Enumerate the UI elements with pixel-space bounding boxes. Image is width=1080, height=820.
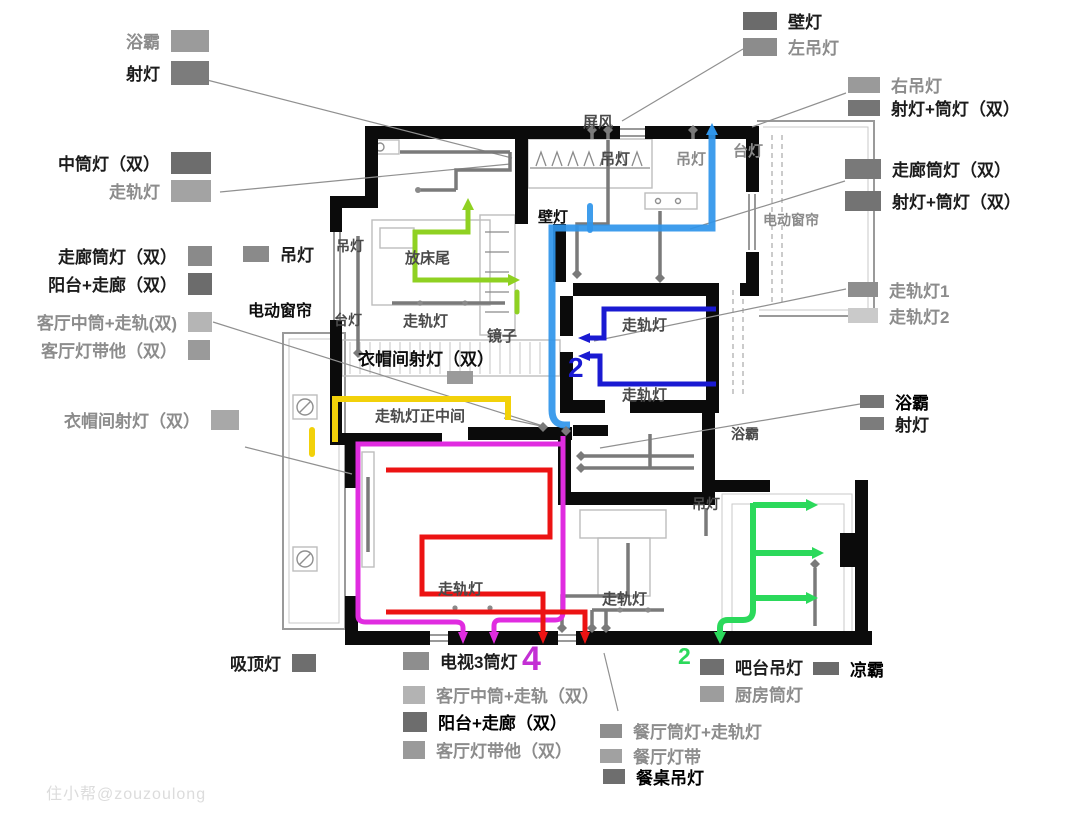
plan-label-wall-lamp: 壁灯 [538, 206, 568, 227]
legend-label: 壁灯 [788, 8, 822, 33]
watermark: 住小帮@zouzoulong [46, 780, 206, 804]
legend-swatch [171, 180, 211, 202]
plan-label-track-bed2: 走轨灯 [403, 310, 448, 331]
legend-swatch [403, 712, 427, 732]
legend-row-right-pendant: 右吊灯 [848, 72, 942, 97]
circuit-number-study: 2 [568, 352, 584, 384]
green-arrow-1 [806, 499, 818, 511]
legend-swatch [848, 77, 880, 93]
legend-label: 衣帽间射灯（双） [52, 407, 200, 432]
legend-swatch [700, 686, 724, 702]
legend-row-track-left: 走轨灯 [40, 178, 211, 203]
legend-swatch [171, 61, 209, 85]
legend-swatch [403, 741, 425, 759]
plan-label-closet-spot: 衣帽间射灯（双） [358, 345, 494, 370]
legend-row-corridor-down-right: 走廊筒灯（双） [845, 156, 1011, 181]
plan-label-pendant-bed2: 吊灯 [336, 236, 364, 256]
legend-swatch [860, 395, 884, 408]
legend-swatch [743, 12, 777, 30]
plan-label-track-study2: 走轨灯 [622, 384, 667, 405]
legend-row-pendant-left: 吊灯 [243, 241, 314, 266]
plan-label-mirror: 镜子 [487, 325, 517, 346]
legend-label: 射灯 [895, 411, 929, 436]
legend-label: 右吊灯 [891, 72, 942, 97]
yellow-green-arrow-up [462, 198, 474, 210]
legend-row-mid-downlight: 中筒灯（双） [40, 150, 211, 175]
legend-label: 吊灯 [280, 241, 314, 266]
legend-label: 厨房筒灯 [735, 681, 803, 706]
legend-row-spot-top-left: 射灯 [60, 60, 209, 85]
legend-label: 射灯+筒灯（双） [892, 188, 1021, 213]
legend-swatch [292, 654, 316, 672]
legend-row-tv3: 电视3筒灯 [403, 648, 517, 673]
legend-row-living-mid-track-bottom: 客厅中筒+走轨（双） [403, 682, 599, 707]
plan-label-track-dining: 走轨灯 [602, 588, 647, 609]
legend-swatch [860, 417, 884, 430]
legend-row-ceiling-lamp: 吸顶灯 [230, 650, 316, 675]
legend-label: 走轨灯1 [889, 277, 949, 302]
legend-label: 客厅灯带他（双） [15, 337, 177, 362]
legend-swatch [188, 273, 212, 295]
plan-label-screen: 屏风 [583, 111, 613, 132]
legend-swatch [600, 749, 622, 763]
legend-label: 射灯 [60, 60, 160, 85]
plan-label-track-living: 走轨灯 [438, 578, 483, 599]
lighting-wiring-floorplan: 浴霸 射灯 中筒灯（双） 走轨灯 走廊筒灯（双） 阳台+走廊（双） 客厅中筒+走… [0, 0, 1080, 820]
legend-row-track2: 走轨灯2 [848, 303, 949, 328]
legend-swatch [211, 410, 239, 430]
legend-swatch [243, 246, 269, 262]
legend-label: 吧台吊灯 [735, 654, 803, 679]
legend-label: 餐厅筒灯+走轨灯 [633, 718, 762, 743]
legend-row-track1: 走轨灯1 [848, 277, 949, 302]
circuit-number-kitchen: 2 [678, 643, 691, 670]
plan-label-lamp-top-right: 台灯 [733, 140, 763, 161]
circuit-red [386, 470, 585, 634]
legend-row-living-mid-track-left: 客厅中筒+走轨(双) [15, 309, 212, 334]
legend-label: 走轨灯2 [889, 303, 949, 328]
legend-row-spot-right: 射灯 [860, 411, 929, 436]
legend-row-spot-down-right: 射灯+筒灯（双） [845, 188, 1021, 213]
legend-row-wall-lamp: 壁灯 [743, 8, 822, 33]
legend-label: 浴霸 [60, 28, 160, 53]
legend-label: 左吊灯 [788, 34, 839, 59]
legend-row-living-strip-left: 客厅灯带他（双） [15, 337, 210, 362]
legend-label: 客厅灯带他（双） [436, 737, 572, 762]
legend-row-dining-pendant: 餐桌吊灯 [603, 764, 704, 789]
legend-label: 餐桌吊灯 [636, 764, 704, 789]
green-arrow-2 [812, 547, 824, 559]
plan-label-pendant-top2: 吊灯 [676, 148, 706, 169]
track-center-swatch [447, 371, 473, 384]
plan-label-bed-end: 放床尾 [405, 247, 450, 268]
plan-label-track-center: 走轨灯正中间 [375, 405, 465, 426]
legend-swatch [848, 308, 878, 323]
legend-label: 中筒灯（双） [40, 150, 160, 175]
legend-label: 凉霸 [850, 656, 884, 681]
legend-label: 电视3筒灯 [440, 648, 517, 673]
plan-label-bath: 浴霸 [731, 424, 759, 444]
legend-swatch [743, 38, 777, 56]
legend-swatch [403, 652, 429, 670]
legend-swatch [188, 340, 210, 360]
plan-label-lamp-bed2: 台灯 [334, 310, 362, 330]
legend-swatch [603, 769, 625, 784]
legend-label: 射灯+筒灯（双） [891, 95, 1020, 120]
legend-swatch [845, 159, 881, 179]
plan-label-pendant-top1: 吊灯 [600, 148, 630, 169]
legend-row-spot-down-top-right: 射灯+筒灯（双） [848, 95, 1020, 120]
legend-swatch [848, 100, 880, 116]
legend-label: 走廊筒灯（双） [892, 156, 1011, 181]
legend-label: 客厅中筒+走轨(双) [15, 309, 177, 334]
plan-label-curtain-right: 电动窗帘 [763, 210, 819, 230]
legend-swatch [600, 724, 622, 738]
legend-swatch [813, 662, 839, 675]
yellow-green-arrow-right [508, 274, 520, 286]
legend-swatch [171, 152, 211, 174]
legend-row-living-strip-bottom: 客厅灯带他（双） [403, 737, 572, 762]
legend-label: 阳台+走廊（双） [438, 709, 567, 734]
legend-row-closet-spot-left: 衣帽间射灯（双） [52, 407, 239, 432]
legend-swatch [188, 246, 212, 266]
legend-row-balcony-corridor-bottom: 阳台+走廊（双） [403, 709, 567, 734]
legend-row-corridor-down-left: 走廊筒灯（双） [15, 243, 212, 268]
legend-row-balcony-corridor-left: 阳台+走廊（双） [15, 271, 212, 296]
legend-label: 吸顶灯 [230, 650, 281, 675]
plan-label-track-study1: 走轨灯 [622, 314, 667, 335]
legend-swatch [700, 659, 724, 675]
legend-row-left-pendant: 左吊灯 [743, 34, 839, 59]
legend-row-cool: 凉霸 [813, 656, 884, 681]
legend-label: 走廊筒灯（双） [15, 243, 177, 268]
legend-swatch [403, 686, 425, 704]
plan-label-pendant-dining: 吊灯 [692, 494, 720, 514]
legend-swatch [845, 191, 881, 211]
legend-row-bath-top-left: 浴霸 [60, 28, 209, 53]
legend-row-bar-pendant: 吧台吊灯 [700, 654, 803, 679]
dark-blue-arrow-1 [578, 333, 590, 343]
legend-swatch [171, 30, 209, 52]
gray-wiring [358, 131, 815, 626]
legend-label: 阳台+走廊（双） [15, 271, 177, 296]
legend-row-dining-down-track: 餐厅筒灯+走轨灯 [600, 718, 762, 743]
legend-label: 客厅中筒+走轨（双） [436, 682, 599, 707]
legend-swatch [188, 312, 212, 332]
legend-label: 走轨灯 [40, 178, 160, 203]
legend-swatch [848, 282, 878, 297]
legend-row-kitchen-down: 厨房筒灯 [700, 681, 803, 706]
circuit-green [720, 503, 812, 634]
plan-label-curtain-left: 电动窗帘 [248, 297, 312, 321]
circuit-number-living: 4 [522, 640, 541, 679]
